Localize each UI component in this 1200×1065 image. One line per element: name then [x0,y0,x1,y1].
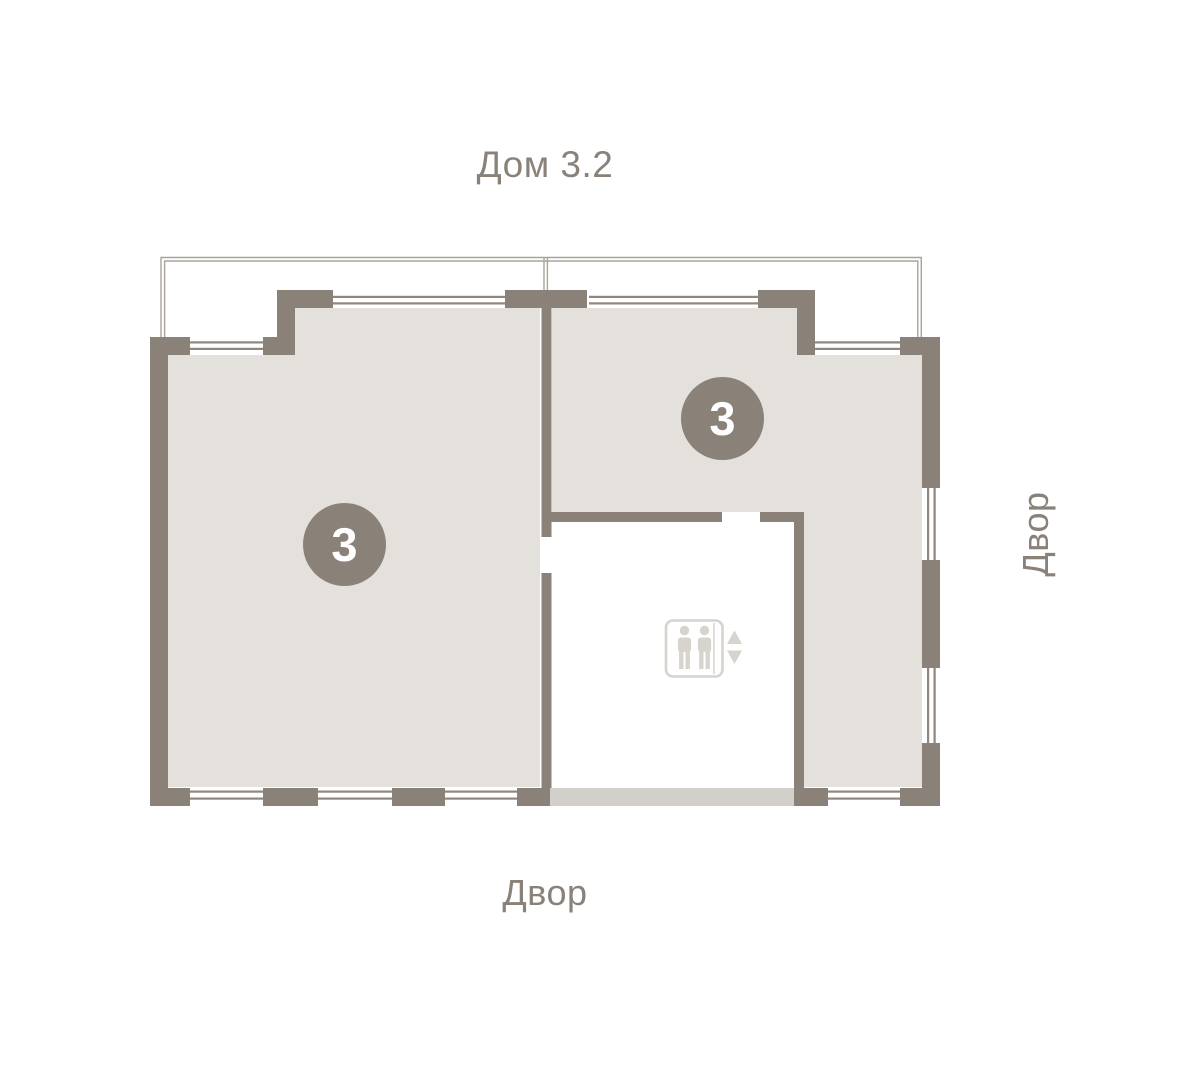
arrow-down-icon [727,651,742,665]
corridor-walls [552,512,805,788]
unit-badge-right-label: 3 [709,391,735,446]
unit-badge-right[interactable]: 3 [681,377,764,460]
unit-badge-left-label: 3 [331,517,357,572]
elevator-door-line [713,623,715,674]
elevator-person-icon [678,626,691,669]
corridor-floor [550,788,794,806]
courtyard-label-right: Двор [1015,491,1057,576]
elevator-person-icon [698,626,711,669]
elevator-icon [666,621,742,677]
arrow-up-icon [727,631,742,645]
courtyard-label-bottom: Двор [502,872,587,914]
unit-badge-left[interactable]: 3 [303,503,386,586]
page-title: Дом 3.2 [477,144,614,186]
floor-plan-page: Дом 3.2 Двор Двор 3 3 [0,0,1200,1065]
